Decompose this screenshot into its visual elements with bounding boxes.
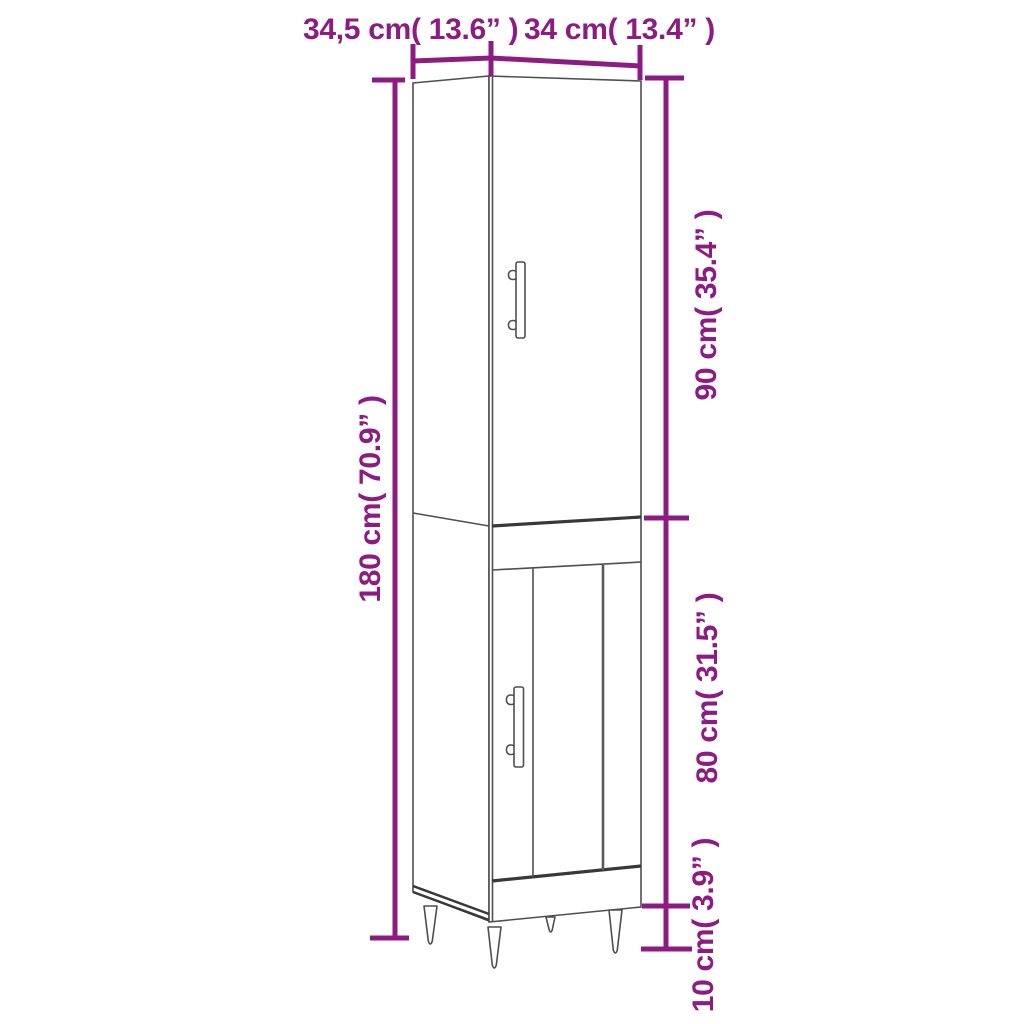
cabinet-front-face <box>489 76 641 922</box>
label-upper-section-height: 90 cm( 35.4” ) <box>692 210 722 401</box>
leg-front-right <box>609 910 622 953</box>
cabinet-diagram-svg <box>0 0 1024 1024</box>
label-total-height: 180 cm( 70.9” ) <box>356 395 386 602</box>
label-leg-height: 10 cm( 3.9” ) <box>689 838 719 1013</box>
lower-handle-bar <box>514 687 524 767</box>
upper-handle-bar <box>516 262 525 338</box>
dimension-diagram: 34,5 cm( 13.6” ) 34 cm( 13.4” ) 180 cm( … <box>0 0 1024 1024</box>
label-width-top: 34 cm( 13.4” ) <box>524 15 715 45</box>
cabinet-side-panel <box>413 76 489 921</box>
top-dimension-rail <box>413 58 640 66</box>
top-dimension-line <box>413 41 640 80</box>
cabinet-drawing <box>413 76 641 968</box>
leg-back-left <box>424 906 437 944</box>
leg-back-right <box>546 917 555 932</box>
right-dimension-line <box>641 78 692 950</box>
label-depth-top: 34,5 cm( 13.6” ) <box>303 15 518 45</box>
label-lower-section-height: 80 cm( 31.5” ) <box>693 593 723 784</box>
leg-front-left <box>488 927 501 968</box>
